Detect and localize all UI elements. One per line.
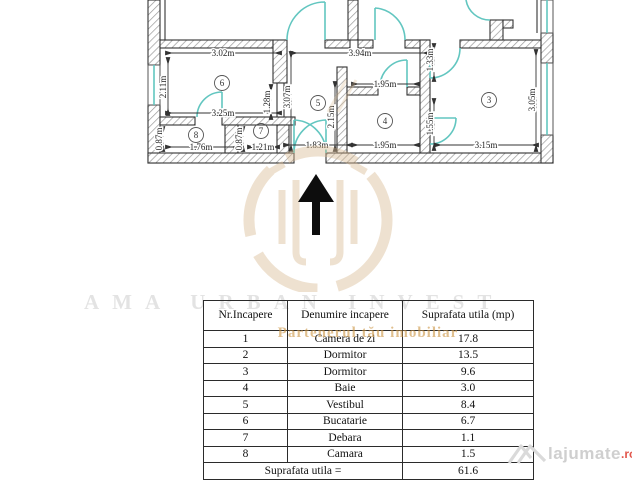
table-row: 2 Dormitor 13.5	[204, 347, 534, 364]
dim-155: 1.55m	[425, 113, 435, 136]
dim-315: 3.15m	[475, 140, 498, 150]
room-name: Baie	[288, 380, 403, 397]
room-4-number: 4	[383, 116, 388, 126]
total-label: Suprafata utila =	[204, 463, 403, 480]
dim-121: 1.21m	[252, 142, 275, 152]
dim-211: 2.11m	[158, 76, 168, 98]
plan-walls	[148, 0, 553, 163]
table-row: 5 Vestibul 8.4	[204, 397, 534, 414]
room-area: 8.4	[403, 397, 534, 414]
room-name: Camara	[288, 446, 403, 463]
dim-394: 3.94m	[349, 48, 372, 58]
site-name: lajumate	[548, 444, 621, 464]
room-nr: 3	[204, 364, 288, 381]
dim-325: 3.25m	[212, 108, 235, 118]
room-8-number: 8	[194, 130, 199, 140]
brand-slogan-watermark: Partenerul tău imobiliar	[228, 325, 508, 342]
table-total-row: Suprafata utila = 61.6	[204, 463, 534, 480]
table-row: 8 Camara 1.5	[204, 446, 534, 463]
dim-087-right: 0.87m	[234, 128, 244, 151]
room-nr: 7	[204, 430, 288, 447]
dim-195-bottom: 1.95m	[374, 140, 397, 150]
room-nr: 8	[204, 446, 288, 463]
room-name: Bucatarie	[288, 413, 403, 430]
dim-087-left: 0.87m	[154, 128, 164, 151]
site-logo-icon	[506, 441, 548, 467]
table-row: 3 Dormitor 9.6	[204, 364, 534, 381]
dim-307: 3.07m	[282, 86, 292, 109]
room-nr: 6	[204, 413, 288, 430]
room-nr: 5	[204, 397, 288, 414]
room-area: 13.5	[403, 347, 534, 364]
table-row: 6 Bucatarie 6.7	[204, 413, 534, 430]
room-name: Dormitor	[288, 347, 403, 364]
room-area: 9.6	[403, 364, 534, 381]
listing-image: { "plan": { "dims": { "d302": "3.02m", "…	[0, 0, 632, 474]
dim-133: 1.33m	[425, 49, 435, 72]
room-name: Debara	[288, 430, 403, 447]
room-area: 6.7	[403, 413, 534, 430]
room-6-number: 6	[220, 78, 225, 88]
room-nr: 2	[204, 347, 288, 364]
room-nr: 4	[204, 380, 288, 397]
room-5-number: 5	[316, 98, 321, 108]
room-name: Dormitor	[288, 364, 403, 381]
dim-302: 3.02m	[212, 48, 235, 58]
dim-195-top: 1.95m	[374, 79, 397, 89]
dim-128: 1.28m	[262, 91, 272, 114]
room-7-number: 7	[259, 126, 264, 136]
room-area: 3.0	[403, 380, 534, 397]
site-tld: .ro	[621, 447, 632, 461]
room-3-number: 3	[487, 95, 492, 105]
dim-305: 3.05m	[527, 89, 537, 112]
table-row: 7 Debara 1.1	[204, 430, 534, 447]
site-watermark: lajumate.ro	[506, 441, 632, 467]
north-arrow-icon	[298, 174, 334, 235]
room-name: Vestibul	[288, 397, 403, 414]
dim-176: 1.76m	[190, 142, 213, 152]
floor-plan: 3.02m 3.94m 2.11m 3.25m 0.87m 1.76m 0.87…	[0, 0, 632, 292]
table-row: 4 Baie 3.0	[204, 380, 534, 397]
